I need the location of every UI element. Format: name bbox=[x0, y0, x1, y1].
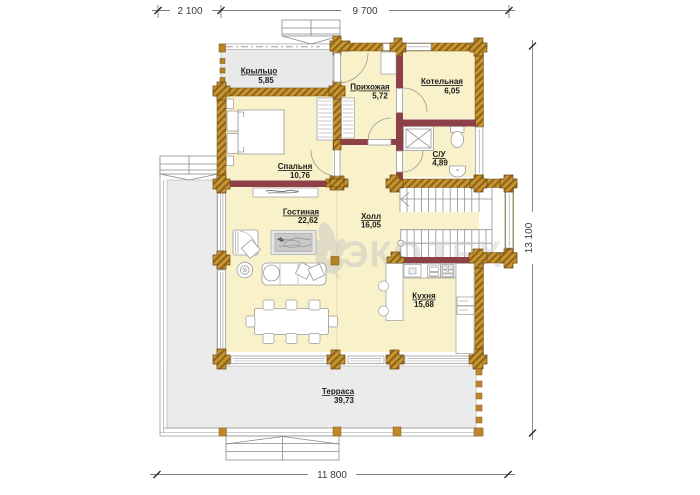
svg-text:5,85: 5,85 bbox=[258, 76, 274, 85]
svg-text:Прихожая: Прихожая bbox=[350, 83, 390, 92]
svg-text:39,73: 39,73 bbox=[334, 396, 355, 405]
svg-text:22,62: 22,62 bbox=[298, 216, 319, 225]
svg-text:13 100: 13 100 bbox=[524, 222, 535, 253]
svg-text:4,89: 4,89 bbox=[432, 159, 448, 168]
svg-text:Спальня: Спальня bbox=[278, 162, 313, 171]
svg-text:16,05: 16,05 bbox=[361, 221, 382, 230]
svg-text:9 700: 9 700 bbox=[352, 6, 377, 17]
svg-text:15,68: 15,68 bbox=[414, 300, 435, 309]
svg-text:11 800: 11 800 bbox=[317, 470, 347, 481]
svg-text:10,76: 10,76 bbox=[290, 171, 311, 180]
svg-text:Котельная: Котельная bbox=[421, 77, 463, 86]
svg-text:Крыльцо: Крыльцо bbox=[241, 67, 278, 76]
svg-text:6,05: 6,05 bbox=[444, 87, 460, 96]
svg-text:2 100: 2 100 bbox=[177, 6, 202, 17]
svg-text:Терраса: Терраса bbox=[322, 387, 355, 396]
svg-text:5,72: 5,72 bbox=[372, 92, 388, 101]
